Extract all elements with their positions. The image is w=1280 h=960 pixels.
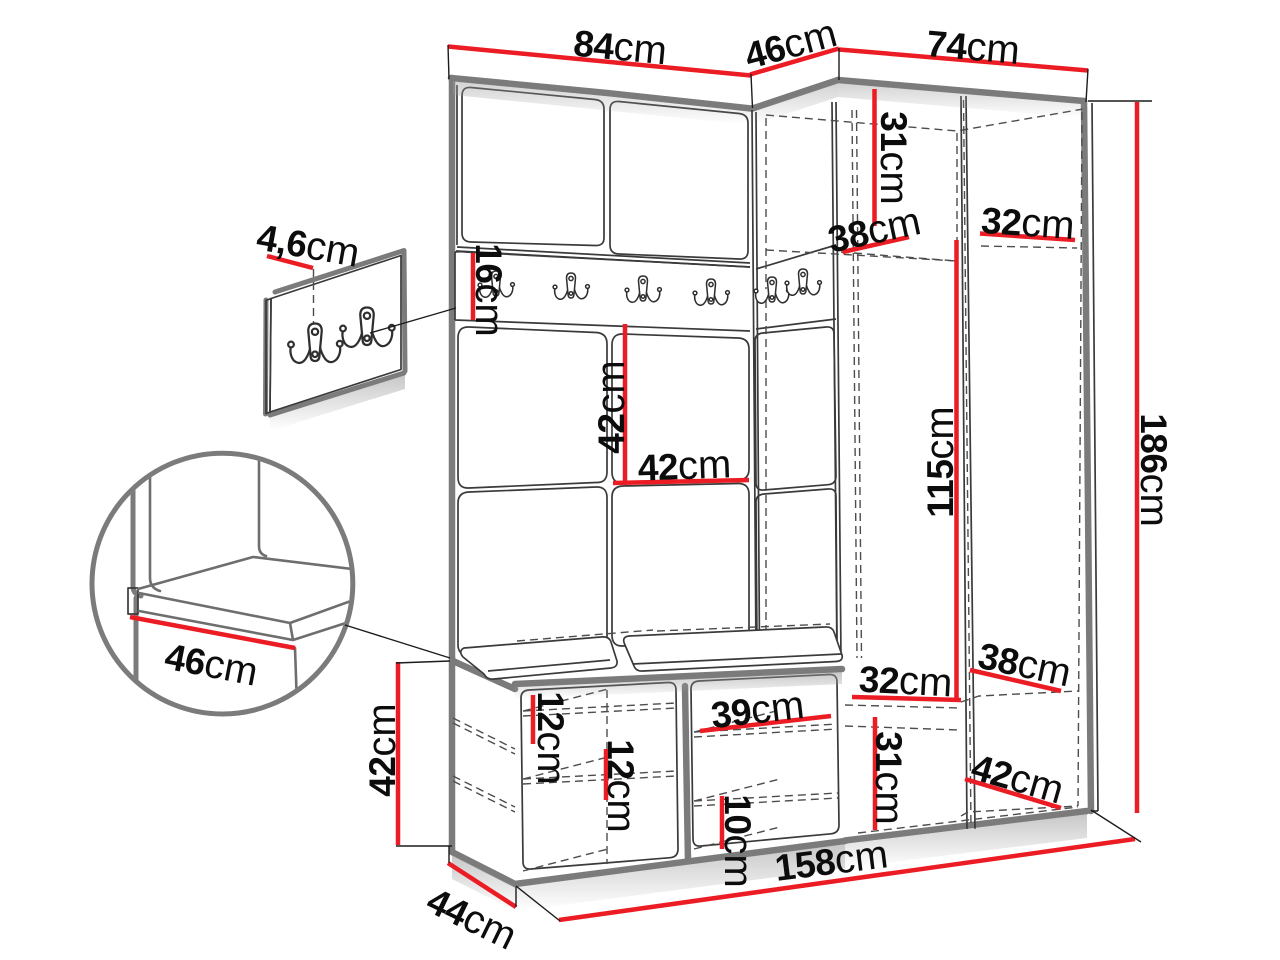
svg-text:16cm: 16cm	[467, 243, 511, 336]
svg-text:31cm: 31cm	[872, 111, 916, 204]
svg-text:42cm: 42cm	[360, 703, 404, 796]
svg-text:42cm: 42cm	[589, 360, 633, 453]
svg-text:12cm: 12cm	[599, 739, 643, 832]
svg-text:10cm: 10cm	[716, 794, 760, 887]
svg-text:42cm: 42cm	[637, 442, 732, 489]
svg-text:12cm: 12cm	[529, 691, 573, 784]
svg-text:115cm: 115cm	[918, 406, 962, 518]
svg-text:32cm: 32cm	[858, 657, 954, 706]
svg-text:32cm: 32cm	[980, 198, 1076, 248]
svg-text:186cm: 186cm	[1132, 413, 1176, 527]
svg-text:31cm: 31cm	[867, 731, 911, 824]
